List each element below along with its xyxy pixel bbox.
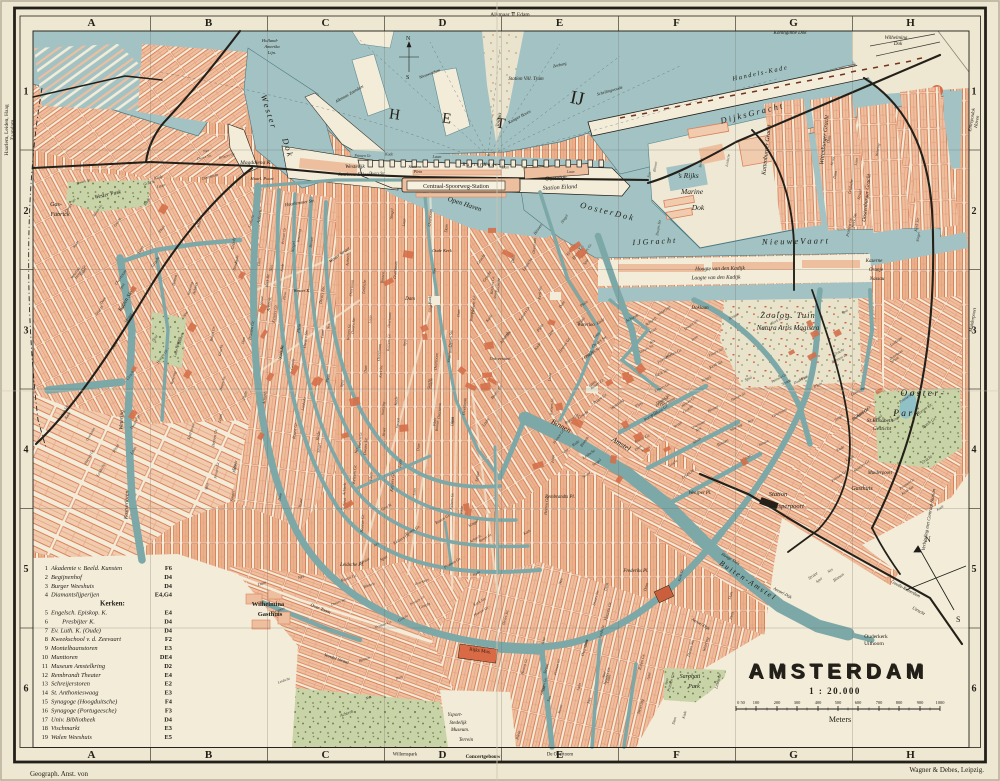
- svg-text:Begijnenhof: Begijnenhof: [51, 574, 83, 581]
- svg-text:Wester K.: Wester K.: [293, 288, 310, 293]
- svg-text:6: 6: [45, 618, 48, 625]
- svg-text:1 : 20.000: 1 : 20.000: [809, 686, 861, 696]
- svg-text:400: 400: [815, 700, 822, 705]
- svg-text:Station Vill. Tram: Station Vill. Tram: [508, 77, 544, 82]
- svg-text:F6: F6: [165, 565, 173, 572]
- svg-text:Nes: Nes: [268, 264, 274, 272]
- svg-text:3: 3: [24, 325, 29, 336]
- svg-text:200: 200: [774, 700, 781, 705]
- svg-text:Laagte van den Kadijk: Laagte van den Kadijk: [690, 275, 741, 282]
- svg-text:14: 14: [42, 690, 49, 697]
- svg-text:Hoogte van den Kadijk: Hoogte van den Kadijk: [694, 266, 746, 273]
- svg-text:Nes: Nes: [353, 447, 359, 455]
- svg-text:C: C: [322, 17, 330, 29]
- svg-text:Gasthuis: Gasthuis: [851, 486, 873, 492]
- svg-text:E4: E4: [165, 672, 173, 679]
- svg-text:Dam: Dam: [415, 443, 421, 452]
- svg-text:15: 15: [42, 699, 48, 706]
- svg-text:Engelsch. Episkop. K.: Engelsch. Episkop. K.: [50, 610, 108, 617]
- svg-text:Ouderkerk: Ouderkerk: [864, 634, 888, 640]
- svg-text:Plein: Plein: [413, 169, 422, 174]
- svg-text:17: 17: [42, 716, 49, 723]
- svg-text:Dam: Dam: [501, 166, 510, 170]
- svg-text:5: 5: [24, 564, 29, 575]
- svg-text:Kostverloren: Kostverloren: [123, 490, 130, 520]
- svg-text:Dok: Dok: [893, 42, 903, 47]
- svg-text:G: G: [789, 749, 798, 761]
- svg-text:Singel: Singel: [447, 353, 452, 363]
- svg-text:D4: D4: [164, 618, 173, 625]
- svg-text:Kade: Kade: [384, 153, 394, 157]
- svg-text:500: 500: [835, 700, 842, 705]
- svg-text:F4: F4: [165, 699, 173, 706]
- svg-text:Vischmarkt: Vischmarkt: [51, 725, 80, 732]
- svg-text:Burger Weeshuis: Burger Weeshuis: [51, 583, 95, 590]
- svg-text:F3: F3: [165, 707, 172, 714]
- svg-text:10: 10: [42, 654, 48, 661]
- svg-text:Straat: Straat: [382, 426, 387, 436]
- svg-text:5: 5: [972, 564, 977, 575]
- svg-text:Nes: Nes: [432, 267, 437, 275]
- svg-text:9: 9: [45, 645, 48, 652]
- svg-text:Dam: Dam: [363, 365, 368, 374]
- svg-text:Dok: Dok: [691, 203, 705, 212]
- svg-text:Kade: Kade: [393, 396, 399, 406]
- svg-text:900: 900: [917, 700, 924, 705]
- svg-text:E2: E2: [165, 681, 172, 688]
- svg-text:3: 3: [45, 583, 48, 590]
- svg-text:Laan: Laan: [412, 488, 417, 497]
- svg-text:Montelbaanstoren: Montelbaanstoren: [50, 645, 98, 652]
- svg-text:Museum Amstelkring: Museum Amstelkring: [50, 663, 106, 670]
- svg-text:Spui: Spui: [339, 378, 345, 387]
- svg-text:Zoolog. Tuin: Zoolog. Tuin: [760, 310, 815, 320]
- svg-text:Ev. Luth. K. (Oude): Ev. Luth. K. (Oude): [50, 627, 101, 634]
- svg-text:Frederiks Pl.: Frederiks Pl.: [622, 569, 648, 574]
- svg-text:1: 1: [45, 565, 48, 572]
- svg-text:Plein: Plein: [459, 506, 464, 515]
- svg-text:4: 4: [24, 445, 29, 456]
- svg-text:Laan: Laan: [547, 373, 553, 383]
- svg-text:800: 800: [896, 700, 903, 705]
- svg-text:Oostelijk: Oostelijk: [545, 175, 567, 182]
- svg-text:Laan: Laan: [432, 154, 442, 159]
- svg-text:Holland-: Holland-: [261, 38, 279, 43]
- svg-text:E: E: [556, 17, 563, 29]
- svg-text:St. Anthonieswaag: St. Anthonieswaag: [51, 690, 99, 697]
- svg-text:1: 1: [24, 87, 29, 98]
- svg-text:D4: D4: [164, 716, 173, 723]
- svg-text:Dwars Str.: Dwars Str.: [368, 172, 385, 176]
- svg-text:S: S: [956, 615, 960, 624]
- svg-text:Wetering: Wetering: [119, 410, 126, 430]
- svg-text:18: 18: [42, 725, 48, 732]
- svg-text:1000: 1000: [936, 700, 946, 705]
- svg-text:Synagoge (Portugeesche): Synagoge (Portugeesche): [51, 707, 116, 714]
- svg-text:D: D: [439, 17, 447, 29]
- svg-text:Laan: Laan: [449, 417, 455, 427]
- svg-text:Ysport-: Ysport-: [448, 713, 463, 718]
- svg-text:Gesticht: Gesticht: [873, 426, 892, 432]
- svg-text:Prinsen Gr.: Prinsen Gr.: [353, 154, 371, 158]
- svg-text:Doklaan: Doklaan: [690, 306, 709, 311]
- svg-text:Wilhelmina: Wilhelmina: [885, 36, 908, 41]
- svg-text:Laan: Laan: [397, 459, 403, 469]
- svg-text:Oude Kerk: Oude Kerk: [432, 248, 453, 253]
- svg-text:Sarphati: Sarphati: [680, 674, 701, 680]
- svg-text:600: 600: [855, 700, 862, 705]
- svg-text:Magdalena K.: Magdalena K.: [239, 160, 271, 166]
- svg-text:Dam: Dam: [443, 224, 449, 234]
- svg-text:N: N: [925, 535, 931, 544]
- svg-text:D: D: [439, 749, 447, 761]
- svg-text:S: S: [406, 75, 409, 81]
- svg-text:Spui: Spui: [402, 339, 408, 347]
- svg-text:Dam: Dam: [404, 297, 415, 302]
- svg-text:AMSTERDAM: AMSTERDAM: [748, 660, 928, 683]
- svg-text:Laan: Laan: [566, 170, 575, 174]
- svg-text:A: A: [88, 749, 96, 761]
- svg-text:Synagoge (Hoogduitsche): Synagoge (Hoogduitsche): [51, 699, 117, 706]
- svg-text:H: H: [906, 17, 915, 29]
- svg-text:D4: D4: [164, 583, 173, 590]
- svg-text:Gas-: Gas-: [50, 202, 62, 208]
- svg-text:11: 11: [42, 663, 48, 670]
- svg-text:G: G: [789, 17, 798, 29]
- svg-text:E3: E3: [165, 690, 172, 697]
- svg-text:2: 2: [24, 206, 29, 217]
- svg-text:Museum.: Museum.: [450, 728, 469, 733]
- svg-text:E4,G4: E4,G4: [155, 592, 173, 599]
- svg-text:N: N: [406, 36, 411, 42]
- svg-text:0 50: 0 50: [737, 700, 745, 705]
- svg-text:D4: D4: [164, 574, 173, 581]
- svg-text:8: 8: [45, 636, 48, 643]
- svg-text:Kerken:: Kerken:: [100, 600, 125, 608]
- svg-text:Walen Weeshuis: Walen Weeshuis: [51, 734, 92, 741]
- svg-text:2: 2: [45, 574, 48, 581]
- svg-text:A: A: [88, 17, 96, 29]
- svg-text:Centraal-Spoorweg-Station: Centraal-Spoorweg-Station: [423, 184, 489, 190]
- svg-text:F: F: [673, 17, 680, 29]
- svg-text:Meters: Meters: [829, 715, 851, 724]
- svg-text:De Overtoom: De Overtoom: [547, 753, 574, 758]
- svg-text:Stedelijk: Stedelijk: [449, 721, 467, 726]
- svg-text:Presbijter K.: Presbijter K.: [51, 618, 95, 625]
- svg-text:Wagner & Debes, Leipzig.: Wagner & Debes, Leipzig.: [909, 766, 984, 774]
- svg-text:Stations Eiland: Stations Eiland: [338, 172, 372, 178]
- svg-text:E3: E3: [165, 645, 172, 652]
- svg-text:Geograph. Anst. von: Geograph. Anst. von: [30, 770, 88, 778]
- svg-text:Concertgebouw: Concertgebouw: [466, 754, 501, 760]
- svg-text:Laan: Laan: [368, 315, 373, 324]
- svg-text:Marine: Marine: [680, 187, 704, 196]
- svg-text:H: H: [906, 749, 915, 761]
- svg-text:Schreijerstoren: Schreijerstoren: [51, 681, 90, 688]
- svg-text:D2: D2: [164, 663, 172, 670]
- svg-text:16: 16: [42, 707, 48, 714]
- svg-text:Singel: Singel: [389, 207, 395, 219]
- svg-text:Laan: Laan: [402, 218, 407, 227]
- svg-text:19: 19: [42, 734, 48, 741]
- svg-text:Plein: Plein: [368, 472, 374, 482]
- svg-text:N i e u w e V a a r t: N i e u w e V a a r t: [761, 235, 829, 246]
- svg-text:E4: E4: [165, 610, 173, 617]
- svg-text:Rembrandt Theater: Rembrandt Theater: [50, 672, 101, 679]
- svg-text:E3: E3: [165, 725, 172, 732]
- svg-text:C: C: [322, 749, 330, 761]
- svg-text:Univ. Bibliotheek: Univ. Bibliotheek: [51, 716, 95, 723]
- svg-text:700: 700: [876, 700, 883, 705]
- svg-text:Universiteit: Universiteit: [489, 356, 511, 361]
- svg-text:Munttoren: Munttoren: [50, 654, 78, 661]
- svg-text:300: 300: [794, 700, 801, 705]
- svg-text:Weesperpoort: Weesperpoort: [768, 503, 804, 510]
- svg-text:5: 5: [45, 610, 48, 617]
- svg-text:Terrein: Terrein: [459, 738, 474, 743]
- svg-text:Station: Station: [769, 491, 787, 498]
- svg-text:E5: E5: [165, 734, 172, 741]
- svg-text:Willemspark: Willemspark: [393, 753, 418, 758]
- svg-text:13: 13: [42, 681, 48, 688]
- svg-text:Lijn.: Lijn.: [267, 50, 276, 55]
- svg-text:Koninginne Dok: Koninginne Dok: [773, 31, 808, 36]
- svg-text:Singel: Singel: [427, 303, 433, 313]
- svg-text:Westelijk: Westelijk: [345, 164, 365, 170]
- svg-text:R u y t e r K a d e: R u y t e r K a d e: [461, 163, 498, 168]
- svg-text:Zaandam: Zaandam: [10, 119, 16, 140]
- svg-text:Akademie v. Beeld. Kunsten: Akademie v. Beeld. Kunsten: [50, 565, 122, 572]
- svg-text:’s Rijks: ’s Rijks: [677, 171, 698, 180]
- svg-text:Kweekschool v. d. Zeevaart: Kweekschool v. d. Zeevaart: [50, 636, 121, 643]
- svg-text:Diamantslijperijen: Diamantslijperijen: [50, 592, 99, 599]
- svg-text:Weesper Pl.: Weesper Pl.: [689, 491, 712, 496]
- svg-text:1: 1: [972, 87, 977, 98]
- svg-text:Muiderpoort: Muiderpoort: [867, 471, 893, 476]
- svg-text:DE4: DE4: [160, 654, 173, 661]
- svg-text:4: 4: [972, 445, 977, 456]
- svg-text:Haarl. Poort: Haarl. Poort: [249, 176, 274, 181]
- svg-text:2: 2: [972, 206, 977, 217]
- svg-text:Nassau: Nassau: [869, 277, 885, 282]
- svg-text:Oranje: Oranje: [869, 268, 884, 273]
- svg-text:Uithoorn: Uithoorn: [864, 641, 884, 647]
- svg-text:Plein: Plein: [551, 455, 556, 464]
- svg-text:6: 6: [24, 684, 29, 695]
- svg-text:B: B: [205, 749, 213, 761]
- svg-text:Kazerne: Kazerne: [865, 259, 883, 264]
- svg-text:Park: Park: [687, 684, 700, 690]
- svg-text:12: 12: [42, 672, 48, 679]
- svg-text:D4: D4: [164, 627, 173, 634]
- svg-text:6: 6: [972, 684, 977, 695]
- svg-text:Dam: Dam: [456, 309, 461, 318]
- svg-text:B: B: [205, 17, 213, 29]
- svg-text:F: F: [673, 749, 680, 761]
- svg-text:100: 100: [753, 700, 760, 705]
- svg-text:Amerika: Amerika: [263, 44, 280, 49]
- svg-text:F2: F2: [165, 636, 172, 643]
- svg-text:Straat: Straat: [474, 470, 480, 482]
